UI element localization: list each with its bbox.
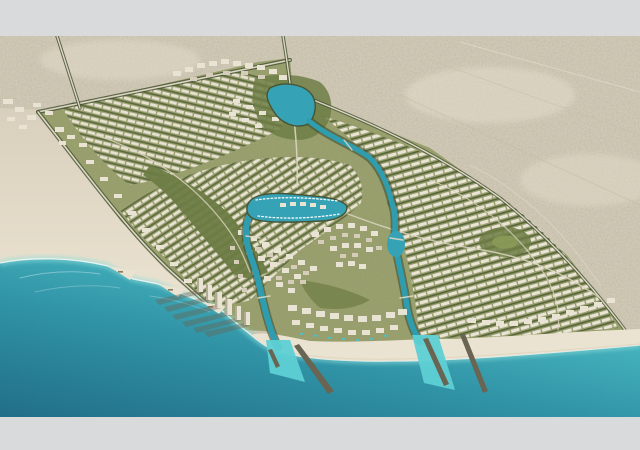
render-canvas: [0, 0, 640, 450]
east-park-lawn: [492, 236, 518, 249]
photo-area: [0, 36, 640, 417]
letterbox-top: [0, 0, 640, 36]
canal-pond: [387, 231, 405, 257]
letterbox-bottom: [0, 417, 640, 450]
light-patch: [405, 67, 575, 123]
aerial-render-photo: [0, 0, 640, 450]
